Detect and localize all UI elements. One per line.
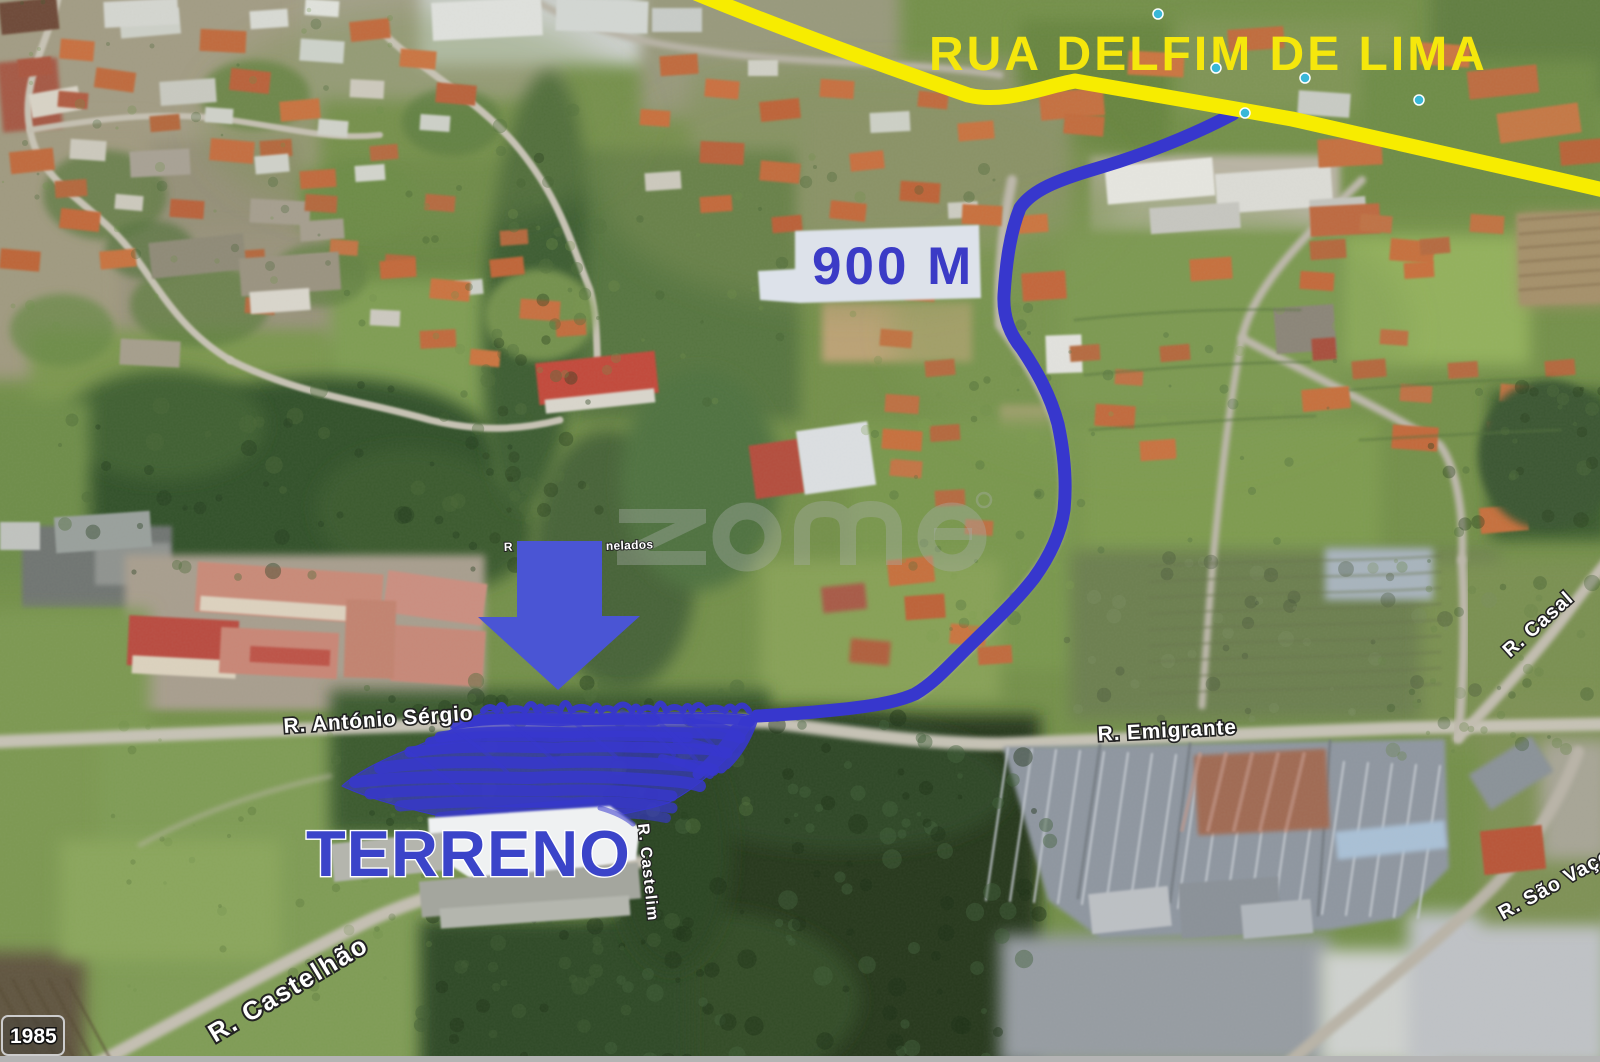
svg-text:TERRENO: TERRENO: [306, 817, 631, 890]
svg-text:900 M: 900 M: [812, 237, 974, 296]
svg-text:R: R: [504, 540, 513, 554]
svg-text:RUA DELFIM DE LIMA: RUA DELFIM DE LIMA: [929, 28, 1488, 81]
svg-text:1985: 1985: [10, 1025, 57, 1048]
svg-text:nelados: nelados: [606, 537, 654, 553]
